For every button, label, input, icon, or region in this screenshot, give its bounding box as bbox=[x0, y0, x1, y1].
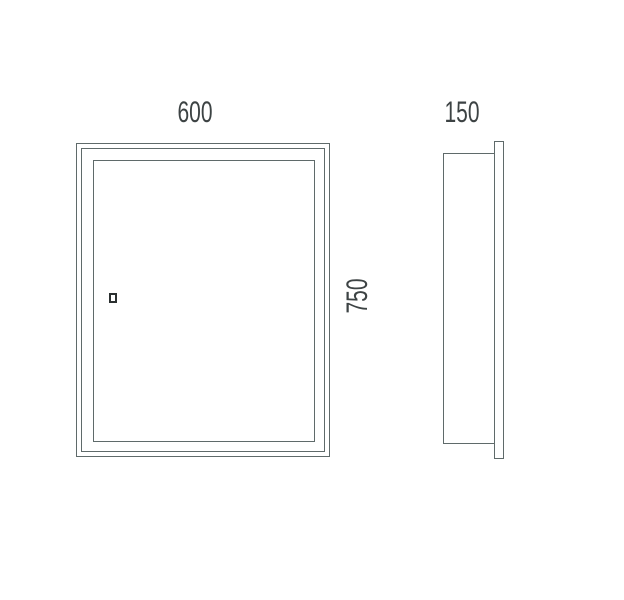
dimension-depth-label: 150 bbox=[438, 98, 487, 128]
side-view-door-panel bbox=[494, 141, 504, 459]
touch-sensor-square bbox=[109, 293, 117, 303]
drawing-canvas: 600 150 750 bbox=[0, 0, 624, 600]
dimension-width-label: 600 bbox=[171, 98, 220, 128]
dimension-height-label: 750 bbox=[343, 272, 373, 321]
front-view-mirror-face bbox=[93, 160, 315, 442]
side-view-cabinet-body bbox=[443, 153, 495, 444]
